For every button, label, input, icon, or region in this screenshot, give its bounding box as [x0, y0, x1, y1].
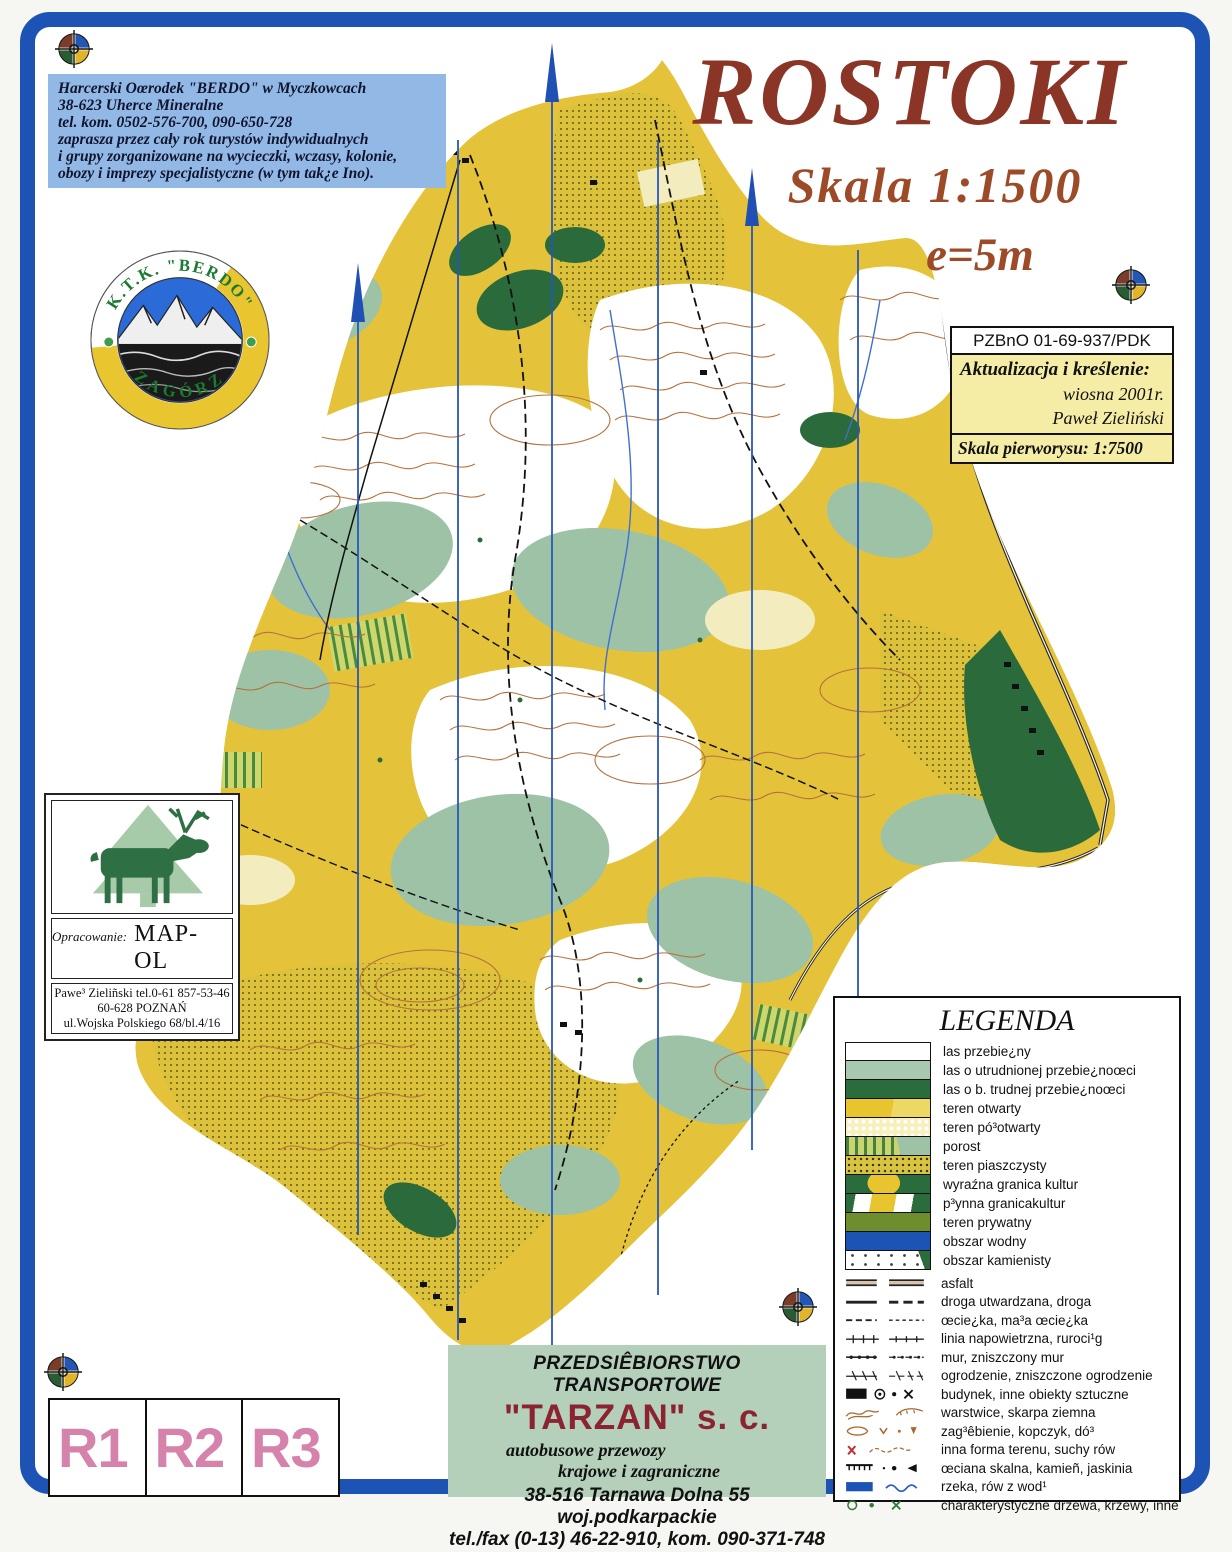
legend-swatch-sandy [845, 1156, 931, 1175]
legend-swatch-open-land [845, 1099, 931, 1118]
legend-symbol-items: asfalt droga utwardzana, droga œcie¿ka, … [835, 1274, 1179, 1514]
advert-box: PRZEDSIÊBIORSTWO TRANSPORTOWE "TARZAN" s… [448, 1345, 826, 1497]
mapol-credit-box: Opracowanie: MAP-OL Pawe³ Zieliñski tel.… [44, 793, 240, 1041]
contour-interval: e=5m [850, 228, 1110, 282]
legend-swatch-forest-open [845, 1042, 931, 1061]
legend-label: porost [943, 1139, 981, 1154]
contact-line: 38-623 Uherce Mineralne [58, 98, 438, 115]
advert-phones: tel./fax (0-13) 46-22-910, kom. 090-371-… [448, 1529, 826, 1551]
legend-label: p³ynna granicakultur [943, 1196, 1065, 1211]
legend-label: obszar wodny [943, 1234, 1026, 1249]
legend-swatch-semi-open [845, 1118, 931, 1137]
legend-box: LEGENDA las przebie¿ny las o utrudnionej… [833, 996, 1181, 1502]
contact-line: tel. kom. 0502-576-700, 090-650-728 [58, 115, 438, 132]
credit-label: Opracowanie: [52, 929, 127, 945]
river-symbol [843, 1478, 929, 1495]
update-label: Aktualizacja i kreślenie: [960, 359, 1164, 381]
route-box-r3: R3 [241, 1398, 340, 1497]
advert-service-line: autobusowe przewozy [448, 1440, 826, 1461]
legend-label: asfalt [941, 1276, 973, 1291]
contact-info-box: Harcerski Oœrodek "BERDO" w Myczkowcach … [48, 74, 446, 188]
landform-symbol [843, 1441, 929, 1458]
registration-mark-icon [779, 1288, 817, 1326]
legend-label: mur, zniszczony mur [941, 1350, 1064, 1365]
legend-swatch-distinct-boundary [845, 1175, 931, 1194]
legend-title: LEGENDA [835, 1004, 1179, 1038]
building-symbol [843, 1385, 929, 1402]
advert-address: 38-516 Tarnawa Dolna 55 woj.podkarpackie [448, 1485, 826, 1529]
legend-swatch-water [845, 1232, 931, 1251]
legend-swatch-forest-dense [845, 1080, 931, 1099]
legend-label: teren prywatny [943, 1215, 1032, 1230]
legend-label: las o b. trudnej przebie¿noœci [943, 1082, 1125, 1097]
legend-swatch-forest-slow [845, 1061, 931, 1080]
legend-label: droga utwardzana, droga [941, 1294, 1091, 1309]
legend-label: rzeka, rów z wod¹ [941, 1479, 1047, 1494]
map-code: PZBnO 01-69-937/PDK [952, 328, 1172, 355]
legend-label: las przebie¿ny [943, 1044, 1031, 1059]
base-scale: Skala pierworysu: 1:7500 [952, 435, 1172, 462]
elk-and-tree-icon [52, 801, 233, 911]
legend-label: teren pó³otwarty [943, 1120, 1041, 1135]
asphalt-symbol [843, 1274, 929, 1291]
advert-company-name: "TARZAN" s. c. [448, 1398, 826, 1438]
legend-swatch-indistinct-boundary [845, 1194, 931, 1213]
route-box-r2: R2 [145, 1398, 244, 1497]
mapol-logo [51, 800, 233, 914]
contour-symbol [843, 1404, 929, 1421]
club-logo: K.T.K. "BERDO" ZAGÓRZ [86, 246, 274, 434]
contact-line: obozy i imprezy specjalistyczne (w tym t… [58, 166, 438, 183]
legend-label: teren piaszczysty [943, 1158, 1047, 1173]
legend-area-items: las przebie¿ny las o utrudnionej przebie… [835, 1042, 1179, 1270]
legend-swatch-private [845, 1213, 931, 1232]
powerline-symbol [843, 1330, 929, 1347]
path-symbol [843, 1311, 929, 1328]
mapol-name: MAP-OL [134, 921, 232, 975]
map-info-box: PZBnO 01-69-937/PDK Aktualizacja i kreśl… [950, 326, 1174, 464]
legend-label: ogrodzenie, zniszczone ogrodzenie [941, 1368, 1153, 1383]
tree-symbol [843, 1496, 929, 1513]
legend-label: œcie¿ka, ma³a œcie¿ka [941, 1313, 1088, 1328]
registration-mark-icon [1112, 266, 1150, 304]
legend-swatch-stony [845, 1251, 931, 1270]
mapol-address-line: ul.Wojska Polskiego 68/bl.4/16 [52, 1016, 232, 1031]
legend-label: las o utrudnionej przebie¿noœci [943, 1063, 1136, 1078]
contact-line: zaprasza przez cały rok turystów indywid… [58, 132, 438, 149]
wall-symbol [843, 1348, 929, 1365]
route-boxes: R1 R2 R3 [48, 1398, 340, 1497]
legend-label: warstwice, skarpa ziemna [941, 1405, 1096, 1420]
registration-mark-icon [44, 1353, 82, 1391]
mapol-address-line: Pawe³ Zieliñski tel.0-61 857-53-46 [52, 986, 232, 1001]
legend-label: wyraźna granica kultur [943, 1177, 1078, 1192]
legend-label: linia napowietrzna, ruroci¹g [941, 1331, 1102, 1346]
registration-mark-icon [55, 30, 93, 68]
legend-label: zag³êbienie, kopczyk, dó³ [941, 1424, 1094, 1439]
map-sheet-page: { "header": { "title": "ROSTOKI", "scale… [0, 0, 1232, 1552]
legend-label: budynek, inne obiekty sztuczne [941, 1387, 1129, 1402]
map-title: ROSTOKI [620, 42, 1200, 142]
mapol-address-line: 60-628 POZNAŃ [52, 1001, 232, 1016]
legend-swatch-undergrowth [845, 1137, 931, 1156]
legend-label: teren otwarty [943, 1101, 1021, 1116]
contact-line: i grupy zorganizowane na wycieczki, wcza… [58, 149, 438, 166]
contact-line: Harcerski Oœrodek "BERDO" w Myczkowcach [58, 81, 438, 98]
legend-label: charakterystyczne drzewa, krzewy, inne [941, 1498, 1179, 1513]
depression-symbol [843, 1422, 929, 1439]
legend-label: inna forma terenu, suchy rów [941, 1442, 1115, 1457]
road-symbol [843, 1293, 929, 1310]
route-box-r1: R1 [48, 1398, 147, 1497]
update-season: wiosna 2001r. [960, 384, 1164, 405]
fence-symbol [843, 1367, 929, 1384]
legend-label: obszar kamienisty [943, 1253, 1051, 1268]
map-scale: Skala 1:1500 [700, 156, 1170, 214]
legend-label: œciana skalna, kamieñ, jaskinia [941, 1461, 1132, 1476]
advert-company-type: PRZEDSIÊBIORSTWO TRANSPORTOWE [448, 1353, 826, 1397]
advert-service-line: krajowe i zagraniczne [448, 1461, 826, 1482]
map-author: Paweł Zieliński [960, 408, 1164, 429]
rockface-symbol [843, 1459, 929, 1476]
